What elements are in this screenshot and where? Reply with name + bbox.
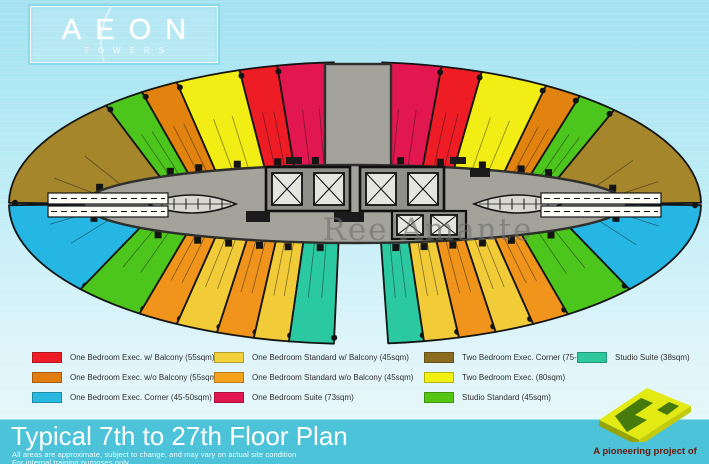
legend-column: Two Bedroom Exec. Corner (75-80)Two Bedr… — [424, 352, 588, 403]
legend-swatch — [32, 352, 62, 363]
legend-label: Two Bedroom Exec. Corner (75-80) — [462, 353, 588, 362]
legend-item: Two Bedroom Exec. Corner (75-80) — [424, 352, 588, 363]
legend-label: One Bedroom Exec. w/o Balcony (55sqm) — [70, 373, 219, 382]
developer-logo-icon — [585, 380, 705, 442]
legend-label: One Bedroom Exec. w/ Balcony (55sqm) — [70, 353, 215, 362]
core-utility-block — [470, 168, 490, 177]
legend-item: One Bedroom Exec. w/ Balcony (55sqm) — [32, 352, 219, 363]
attribution-text: A pioneering project of — [581, 446, 709, 457]
legend-item: One Bedroom Standard w/ Balcony (45sqm) — [214, 352, 413, 363]
legend-swatch — [32, 372, 62, 383]
slide: AEON TOWERS Ree Amante One Bedroom Exec.… — [0, 0, 709, 464]
legend-swatch — [214, 352, 244, 363]
legend-label: One Bedroom Exec. Corner (45-50sqm) — [70, 393, 212, 402]
legend-label: Two Bedroom Exec. (80sqm) — [462, 373, 565, 382]
legend-column: One Bedroom Exec. w/ Balcony (55sqm)One … — [32, 352, 219, 403]
legend-swatch — [577, 352, 607, 363]
legend-item: One Bedroom Standard w/o Balcony (45sqm) — [214, 372, 413, 383]
core-utility-block — [286, 157, 302, 164]
legend-column: One Bedroom Standard w/ Balcony (45sqm)O… — [214, 352, 413, 403]
elevator-bank — [360, 167, 444, 211]
legend-label: One Bedroom Standard w/o Balcony (45sqm) — [252, 373, 413, 382]
core-utility-block — [246, 211, 270, 222]
legend-item: One Bedroom Exec. w/o Balcony (55sqm) — [32, 372, 219, 383]
legend-swatch — [214, 372, 244, 383]
legend-item: Two Bedroom Exec. (80sqm) — [424, 372, 588, 383]
legend-item: Studio Standard (45sqm) — [424, 392, 588, 403]
legend-item: One Bedroom Suite (73sqm) — [214, 392, 413, 403]
legend-label: Studio Standard (45sqm) — [462, 393, 551, 402]
disclaimer-line2: For internal training purposes only — [12, 458, 129, 464]
legend-item: One Bedroom Exec. Corner (45-50sqm) — [32, 392, 219, 403]
developer-mark: A pioneering project of — [581, 380, 709, 464]
legend-label: One Bedroom Standard w/ Balcony (45sqm) — [252, 353, 409, 362]
legend-swatch — [32, 392, 62, 403]
elevator-bank — [266, 167, 350, 211]
legend-item: Studio Suite (38sqm) — [577, 352, 690, 363]
page-title: Typical 7th to 27th Floor Plan — [11, 421, 348, 452]
watermark: Ree Amante — [323, 212, 534, 248]
legend-label: One Bedroom Suite (73sqm) — [252, 393, 354, 402]
core-utility-block — [450, 157, 466, 164]
legend-swatch — [424, 372, 454, 383]
legend-label: Studio Suite (38sqm) — [615, 353, 690, 362]
legend-column: Studio Suite (38sqm) — [577, 352, 690, 363]
legend-swatch — [214, 392, 244, 403]
legend-swatch — [424, 392, 454, 403]
legend-swatch — [424, 352, 454, 363]
